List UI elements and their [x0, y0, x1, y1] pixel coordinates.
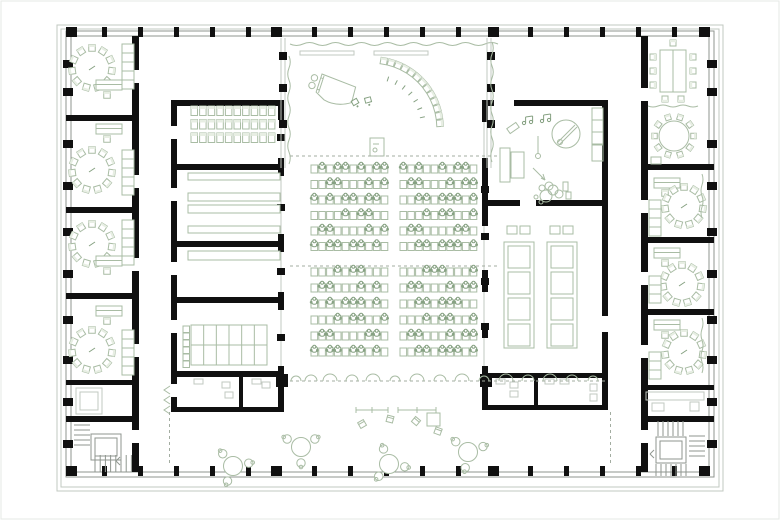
- tchair: [386, 415, 394, 423]
- desk-row: [400, 297, 477, 308]
- fill: [171, 100, 284, 106]
- ttable: [374, 443, 410, 481]
- fill: [279, 84, 287, 92]
- table: [188, 205, 280, 213]
- desk-row: [400, 193, 478, 204]
- desk: [96, 256, 122, 274]
- rect: [222, 382, 230, 388]
- cabinets: [122, 330, 134, 375]
- rect: [690, 402, 699, 411]
- fill: [171, 262, 177, 275]
- zigzag: [164, 386, 170, 414]
- desk: [96, 124, 122, 142]
- fill: [641, 200, 648, 213]
- fill: [641, 309, 714, 315]
- floor-plan-page: [0, 0, 780, 520]
- fill: [279, 120, 287, 128]
- fill: [66, 207, 139, 213]
- classroom-r2: [649, 174, 706, 236]
- treads: [689, 436, 705, 456]
- fill: [276, 374, 288, 387]
- lines: [116, 457, 120, 465]
- rect: [225, 392, 233, 398]
- notes: [522, 116, 532, 125]
- fill: [132, 430, 139, 443]
- fill: [641, 164, 714, 170]
- fill: [277, 334, 285, 341]
- rect: [511, 152, 524, 178]
- desk-rows-right: [399, 162, 477, 356]
- rect: [252, 379, 261, 384]
- desk-row: [310, 240, 388, 251]
- rect: [652, 403, 664, 411]
- chair-circle: [69, 147, 116, 193]
- rect: [651, 157, 661, 164]
- ttable: [282, 435, 320, 469]
- rect: [646, 392, 704, 400]
- table: [188, 193, 280, 201]
- fill: [641, 272, 648, 285]
- rect: [71, 36, 709, 472]
- rect: [194, 379, 203, 384]
- mstand: [364, 97, 372, 107]
- music-room: [500, 108, 603, 204]
- desk-row: [310, 193, 388, 204]
- fill: [481, 186, 489, 193]
- tchair: [434, 427, 442, 435]
- lines: [533, 168, 545, 180]
- desk-row: [311, 224, 389, 235]
- circ: [536, 154, 541, 159]
- desk-row: [400, 178, 478, 189]
- desk-row: [399, 162, 477, 173]
- rect: [80, 392, 98, 410]
- desk: [654, 248, 680, 266]
- tchair: [411, 416, 420, 425]
- rect: [500, 148, 510, 182]
- desk-row: [400, 224, 477, 235]
- fill: [641, 88, 648, 101]
- fill: [171, 164, 284, 170]
- rect: [590, 384, 597, 391]
- desk: [96, 306, 122, 324]
- fill: [66, 115, 139, 121]
- fill: [171, 241, 284, 247]
- cabinets: [592, 108, 603, 144]
- table: [188, 251, 280, 260]
- chair-circle: [660, 262, 705, 307]
- desk-row: [311, 329, 388, 340]
- fill: [279, 52, 287, 60]
- meeting-room: [648, 40, 698, 164]
- treads: [95, 455, 131, 472]
- fill: [482, 338, 488, 366]
- bench: [547, 226, 577, 348]
- wc-left-block: [194, 379, 270, 398]
- sqg: [290, 43, 498, 46]
- classroom-1: [69, 44, 134, 98]
- rect: [590, 394, 597, 401]
- tchair: [358, 420, 367, 429]
- lines: [281, 38, 491, 168]
- desk-row: [311, 265, 388, 276]
- table: [188, 226, 280, 233]
- rect: [510, 391, 518, 397]
- treads: [74, 425, 90, 445]
- table: [188, 173, 280, 180]
- desk-row: [400, 329, 478, 340]
- desk-row: [311, 178, 389, 189]
- treads: [656, 464, 686, 476]
- grid-table: [191, 325, 267, 365]
- lines: [650, 450, 654, 458]
- circ: [373, 148, 377, 152]
- right-wing: [641, 36, 714, 476]
- desk-row: [400, 265, 478, 276]
- drum: [552, 120, 580, 148]
- cabinets: [122, 44, 134, 89]
- fill: [520, 200, 536, 206]
- desk: [96, 80, 122, 98]
- tickline: [356, 407, 388, 413]
- desk-row: [400, 240, 478, 251]
- terrace: [218, 407, 488, 487]
- fill: [171, 407, 284, 412]
- right-block: [480, 100, 608, 410]
- fill: [481, 233, 489, 240]
- sqg: [288, 56, 291, 164]
- fill: [641, 345, 648, 358]
- fill: [494, 100, 514, 106]
- fill: [171, 100, 177, 412]
- fill: [641, 237, 714, 243]
- left-block: [164, 100, 288, 414]
- sqg: [648, 105, 698, 107]
- fill: [602, 316, 608, 332]
- desk-row: [311, 313, 389, 324]
- classroom-2: [69, 124, 134, 195]
- fill: [66, 293, 139, 299]
- fill: [487, 120, 495, 128]
- fill: [171, 371, 284, 377]
- classroom-r4: [649, 318, 706, 379]
- cabinets: [122, 150, 134, 195]
- fill: [171, 320, 177, 333]
- classroom-3: [69, 220, 134, 274]
- desk-row: [311, 209, 388, 220]
- fill: [482, 200, 608, 206]
- fill: [641, 430, 648, 443]
- rect: [660, 441, 682, 459]
- tickline: [398, 407, 436, 413]
- chair-circle: [69, 327, 116, 373]
- rect: [95, 438, 117, 456]
- rect: [374, 51, 428, 55]
- desk-row: [311, 281, 388, 292]
- fill: [481, 278, 489, 285]
- teacher-table: [370, 138, 384, 156]
- desk-row: [400, 345, 478, 356]
- trect: [507, 122, 519, 133]
- utility-room-right: [646, 392, 704, 411]
- stairs-left: [74, 425, 131, 472]
- fill: [481, 323, 489, 330]
- fill: [277, 268, 285, 275]
- desk-row: [311, 162, 389, 173]
- round-table: [652, 114, 697, 158]
- fill: [641, 36, 648, 472]
- fill: [171, 297, 284, 303]
- chair-rows-room: [191, 106, 275, 143]
- rect: [262, 382, 270, 388]
- treads: [658, 421, 683, 436]
- desk-rows-left: [310, 162, 388, 356]
- rect: [592, 145, 603, 161]
- notes: [540, 114, 550, 123]
- fill: [171, 126, 177, 139]
- piano: [306, 71, 358, 109]
- fill: [239, 377, 243, 407]
- cabinets: [649, 200, 661, 236]
- squares-col: [183, 326, 190, 368]
- rect: [427, 413, 440, 426]
- ttable: [218, 449, 254, 487]
- mtable: [650, 40, 696, 102]
- desk-row: [400, 281, 478, 292]
- desk-row: [310, 297, 388, 308]
- desk-row: [400, 209, 478, 220]
- fill: [171, 188, 177, 201]
- cabinets: [649, 276, 661, 303]
- rect: [66, 31, 714, 477]
- rect: [300, 51, 354, 55]
- stairs-right: [650, 421, 705, 476]
- facade-columns: [63, 27, 717, 476]
- fill: [66, 416, 139, 422]
- left-wing: [66, 36, 139, 472]
- workshop-room: [504, 226, 577, 348]
- classroom-r3: [649, 248, 704, 306]
- cabinets: [649, 352, 661, 379]
- desk-row: [310, 345, 388, 356]
- bench: [504, 226, 534, 348]
- fill: [66, 380, 139, 385]
- floor-plan-drawing: [0, 0, 780, 520]
- fill: [482, 405, 608, 410]
- fill: [171, 384, 177, 397]
- utility-room-left: [76, 388, 102, 414]
- fill: [482, 226, 488, 270]
- fill: [641, 385, 714, 390]
- rect: [510, 382, 518, 388]
- desk-row: [400, 313, 478, 324]
- classroom-4: [69, 306, 134, 375]
- rect: [370, 138, 384, 156]
- cabinets: [122, 220, 134, 265]
- wc-right-block: [496, 379, 597, 401]
